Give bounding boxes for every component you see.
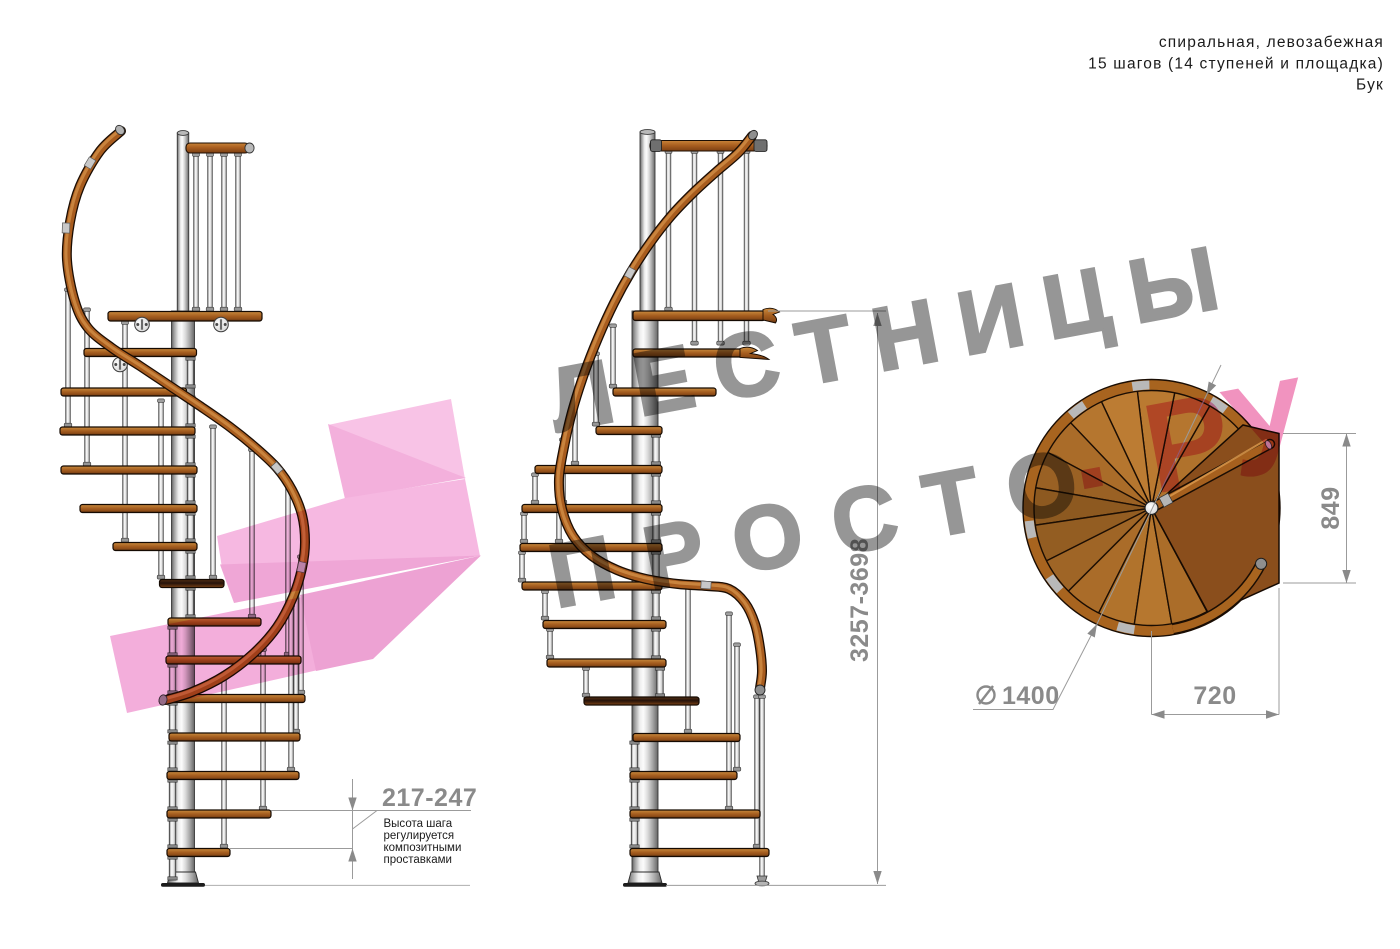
- svg-text:1400: 1400: [1002, 682, 1060, 710]
- svg-text:849: 849: [1317, 486, 1345, 529]
- svg-text:Высота шагарегулируетсякомпози: Высота шагарегулируетсякомпозитнымипрост…: [384, 818, 462, 866]
- svg-text:217-247: 217-247: [382, 784, 477, 812]
- svg-text:720: 720: [1193, 682, 1236, 710]
- svg-text:РУ: РУ: [1133, 351, 1320, 522]
